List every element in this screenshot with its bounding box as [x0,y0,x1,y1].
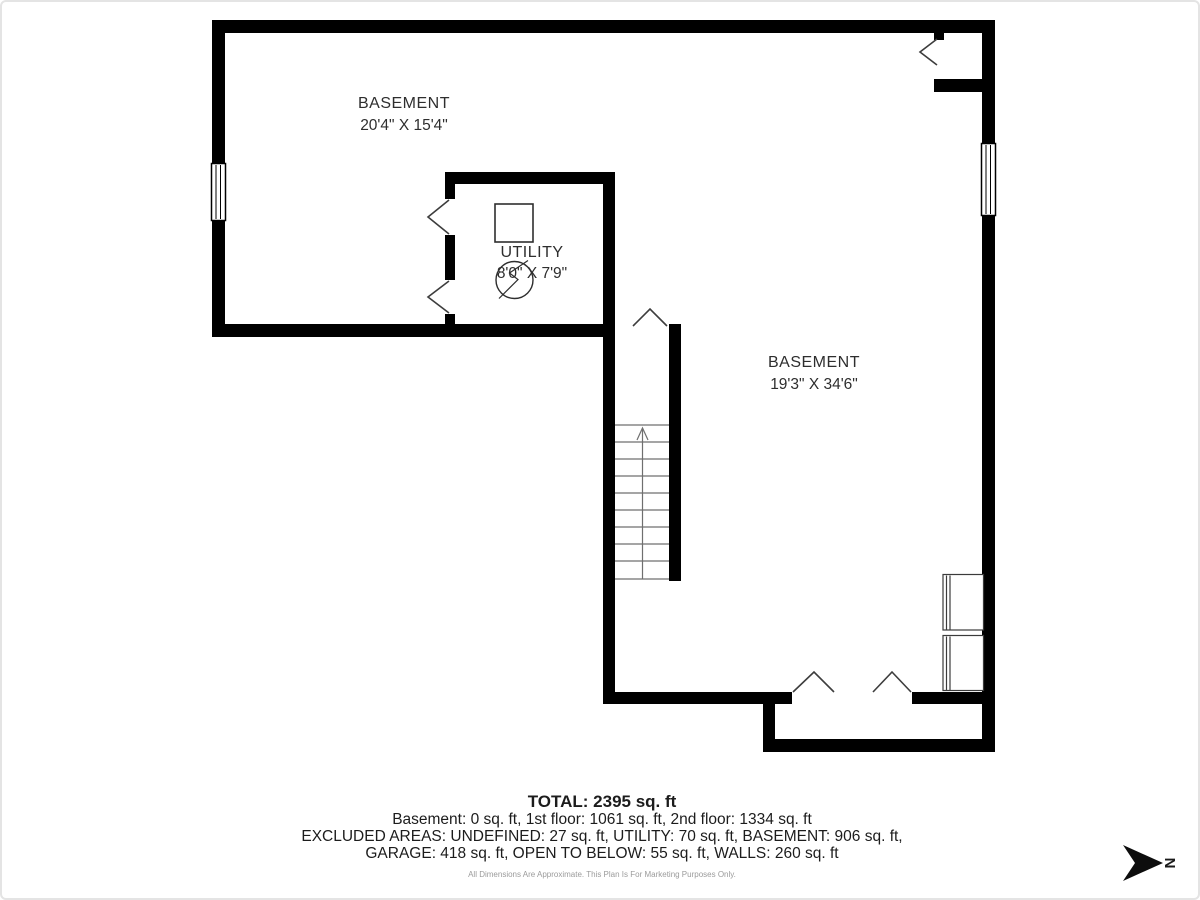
wall-utility-right [603,184,615,324]
wall-utility-left-c [445,314,455,324]
north-arrow-icon [1123,845,1163,881]
door-stair-hall [633,309,667,326]
door-exterior-right [873,672,911,692]
wall-top [212,20,995,33]
wall-closet-stub [934,33,944,40]
total-area-text: TOTAL: 2395 sq. ft [528,792,677,811]
utility-label: UTILITY [500,244,563,261]
door-utility-lower [428,281,449,313]
wall-utility-left-a [445,172,455,199]
door-swings [428,39,937,692]
wall-stairwell-left [603,337,615,692]
north-label: N [1161,858,1178,869]
staircase [615,425,669,579]
floor-plan-drawing: BASEMENT 20'4" X 15'4" UTILITY 8'0" X 7'… [2,2,1200,900]
stair-direction-arrow [637,428,648,579]
walls [212,20,995,752]
utility-dimensions: 8'0" X 7'9" [497,265,567,282]
wall-utility-top [445,172,615,184]
wall-bumpout-bottom [763,739,995,752]
wall-bottom-right [912,692,982,704]
wall-bottom-left [603,692,792,704]
wall-stairwell-right [669,324,681,581]
door-exterior-left [793,672,834,692]
window-right-wall [982,144,996,216]
basement-lower-label: BASEMENT [768,354,860,371]
door-utility-upper [428,200,449,234]
excluded-areas-text-line2: GARAGE: 418 sq. ft, OPEN TO BELOW: 55 sq… [365,845,839,862]
basement-lower-dimensions: 19'3" X 34'6" [770,376,858,393]
compass: N [1123,845,1178,881]
excluded-areas-text-line1: EXCLUDED AREAS: UNDEFINED: 27 sq. ft, UT… [301,828,902,845]
wall-fixtures [943,575,984,691]
door-closet [920,39,937,65]
wall-utility-left-b [445,235,455,280]
disclaimer-text: All Dimensions Are Approximate. This Pla… [468,870,736,879]
area-summary: TOTAL: 2395 sq. ft Basement: 0 sq. ft, 1… [301,792,902,879]
floor-plan-page: BASEMENT 20'4" X 15'4" UTILITY 8'0" X 7'… [0,0,1200,900]
basement-upper-dimensions: 20'4" X 15'4" [360,117,448,134]
basement-upper-label: BASEMENT [358,95,450,112]
furnace-symbol [495,204,533,242]
fixture-upper [943,575,984,631]
window-left-wall [212,164,226,221]
wall-closet-bottom [934,79,982,92]
wall-bumpout-left [763,704,775,739]
floor-areas-text: Basement: 0 sq. ft, 1st floor: 1061 sq. … [392,811,812,828]
fixture-lower [943,636,984,691]
wall-upper-room-bottom [212,324,615,337]
